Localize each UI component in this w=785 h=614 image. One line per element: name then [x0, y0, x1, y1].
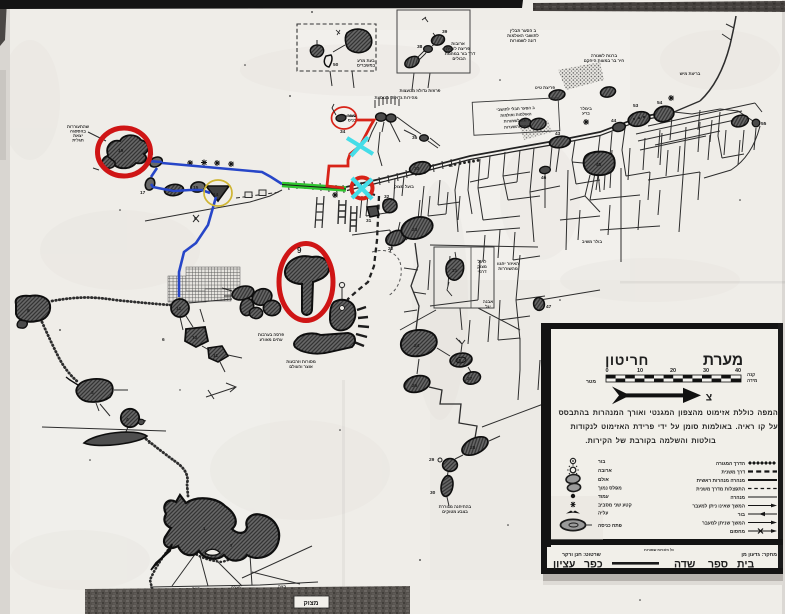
svg-text:2: 2 — [148, 440, 151, 446]
svg-text:ספר: ספר — [708, 559, 728, 571]
svg-text:עמוד: עמוד — [598, 495, 609, 500]
svg-text:מטר: מטר — [586, 379, 596, 385]
svg-text:24: 24 — [414, 343, 420, 349]
svg-text:10: 10 — [637, 368, 643, 374]
svg-text:פרוזות גדולוז מנועצות: פרוזות גדולוז מנועצות — [400, 88, 441, 93]
svg-text:1: 1 — [203, 526, 206, 532]
svg-text:המפה כוללת אזימוט מהצפון המגנט: המפה כוללת אזימוט מהצפון המגנטי ואורך המ… — [559, 408, 778, 417]
svg-text:חריטון: חריטון — [605, 352, 649, 368]
svg-text:4: 4 — [126, 417, 129, 423]
svg-text:40: 40 — [735, 368, 741, 374]
svg-text:בור: בור — [738, 513, 745, 518]
svg-text:35: 35 — [412, 135, 418, 141]
svg-text:בולטות והשלמה בקורבת של הקירות: בולטות והשלמה בקורבת של הקירות. — [585, 436, 716, 445]
svg-text:53: 53 — [633, 103, 639, 109]
svg-text:קטע שני מסביב: קטע שני מסביב — [598, 504, 632, 509]
svg-text:22: 22 — [388, 246, 394, 252]
svg-text:54: 54 — [657, 100, 663, 106]
svg-text:ארובה: ארובה — [598, 469, 613, 474]
svg-text:11: 11 — [213, 353, 218, 359]
svg-text:43: 43 — [555, 131, 561, 137]
svg-text:צ: צ — [706, 392, 712, 404]
svg-text:שדה: שדה — [674, 559, 696, 571]
svg-text:21: 21 — [452, 268, 458, 274]
svg-text:מערת: מערת — [703, 352, 743, 369]
svg-text:46: 46 — [541, 175, 547, 181]
svg-text:6: 6 — [162, 337, 165, 343]
svg-text:45: 45 — [596, 162, 602, 168]
svg-text:28: 28 — [470, 445, 476, 451]
svg-text:במשברים: במשברים — [357, 63, 376, 68]
svg-text:מידה: מידה — [747, 378, 757, 383]
svg-text:7: 7 — [230, 543, 233, 549]
svg-text:מנהרה מנהרות ראשית: מנהרה מנהרות ראשית — [697, 479, 746, 484]
svg-text:33: 33 — [414, 166, 420, 172]
svg-text:26: 26 — [412, 383, 418, 389]
svg-text:3: 3 — [91, 390, 94, 396]
svg-text:עתים מאורע: עתים מאורע — [259, 337, 283, 342]
svg-text:47: 47 — [546, 304, 552, 310]
svg-text:55: 55 — [761, 121, 767, 127]
svg-text:כל הזכויות שמורות: כל הזכויות שמורות — [644, 548, 674, 552]
svg-text:תגלית: תגלית — [72, 138, 84, 143]
svg-text:הבולים: הבולים — [452, 56, 466, 61]
svg-text:מהירות גדולתו מנוסצת: מהירות גדולתו מנוסצת — [374, 95, 417, 100]
svg-text:מהשוררות: מהשוררות — [498, 266, 518, 271]
svg-text:44: 44 — [611, 118, 617, 124]
svg-text:30: 30 — [430, 490, 436, 496]
svg-text:פתח כניסה: פתח כניסה — [598, 524, 622, 529]
svg-text:50: 50 — [333, 62, 339, 68]
svg-text:המשך שניתן למעבר: המשך שניתן למעבר — [702, 521, 745, 527]
svg-text:10: 10 — [192, 335, 198, 341]
svg-text:30: 30 — [703, 368, 709, 374]
svg-text:25: 25 — [456, 358, 462, 364]
svg-text:המשך שאינו ניתן למעבר: המשך שאינו ניתן למעבר — [692, 504, 745, 510]
svg-text:אולם: אולם — [598, 477, 610, 483]
svg-text:שרטוט: חנן ורקר: שרטוט: חנן ורקר — [562, 552, 601, 558]
svg-text:קנה: קנה — [747, 372, 755, 377]
svg-text:39: 39 — [442, 29, 448, 35]
svg-text:12: 12 — [176, 306, 182, 312]
svg-text:אוצר והעולם: אוצר והעולם — [289, 364, 313, 369]
svg-text:דונה לשמורות: דונה לשמורות — [510, 38, 537, 43]
svg-text:ברע: ברע — [582, 111, 590, 116]
svg-text:יגל: יגל — [485, 304, 491, 309]
svg-text:בועל מצוק: בועל מצוק — [394, 184, 414, 189]
svg-text:17: 17 — [140, 190, 146, 196]
svg-text:20: 20 — [670, 368, 676, 374]
svg-text:בצבע מטוקים: בצבע מטוקים — [442, 509, 468, 514]
svg-text:דרמי: דרמי — [477, 269, 487, 274]
svg-text:עליה: עליה — [598, 511, 608, 517]
svg-text:מנהרה: מנהרה — [730, 496, 745, 501]
svg-text:בולר משיב: בולר משיב — [582, 239, 602, 244]
svg-text:מפלס נמוך: מפלס נמוך — [598, 486, 622, 492]
svg-text:23: 23 — [412, 227, 418, 233]
svg-text:הדרך המגורה: הדרך המגורה — [716, 462, 745, 467]
svg-text:9: 9 — [297, 246, 302, 255]
svg-text:34: 34 — [340, 129, 346, 135]
svg-text:מצוק: מצוק — [304, 600, 319, 607]
svg-text:0: 0 — [605, 368, 608, 374]
svg-text:בית: בית — [737, 559, 754, 571]
svg-text:כפר: כפר — [584, 559, 603, 571]
svg-text:חיר בר במעות היחקם: חיר בר במעות היחקם — [584, 58, 624, 63]
svg-text:דרך משנית: דרך משנית — [721, 471, 745, 476]
svg-text:בור: בור — [598, 460, 605, 465]
svg-text:עציון: עציון — [553, 559, 575, 571]
svg-text:מחסום: מחסום — [730, 530, 746, 535]
svg-text:מחקר: גדעון מן: מחקר: גדעון מן — [741, 552, 777, 558]
svg-text:29: 29 — [429, 457, 435, 463]
svg-text:27: 27 — [467, 376, 473, 382]
svg-text:8: 8 — [27, 308, 30, 314]
svg-text:9: 9 — [194, 216, 197, 222]
svg-text:התפצלות מדרך משנית: התפצלות מדרך משנית — [696, 487, 745, 493]
svg-text:פריצת טיט: פריצת טיט — [535, 85, 555, 90]
svg-text:31: 31 — [366, 218, 372, 224]
svg-text:32: 32 — [384, 194, 390, 200]
svg-text:19: 19 — [118, 148, 124, 154]
svg-text:38: 38 — [417, 44, 423, 50]
svg-text:על קו ראיה. באולמות סומן על יד: על קו ראיה. באולמות סומן על ידי פרידת הא… — [570, 422, 778, 431]
svg-text:בריצת מיש: בריצת מיש — [680, 71, 701, 76]
